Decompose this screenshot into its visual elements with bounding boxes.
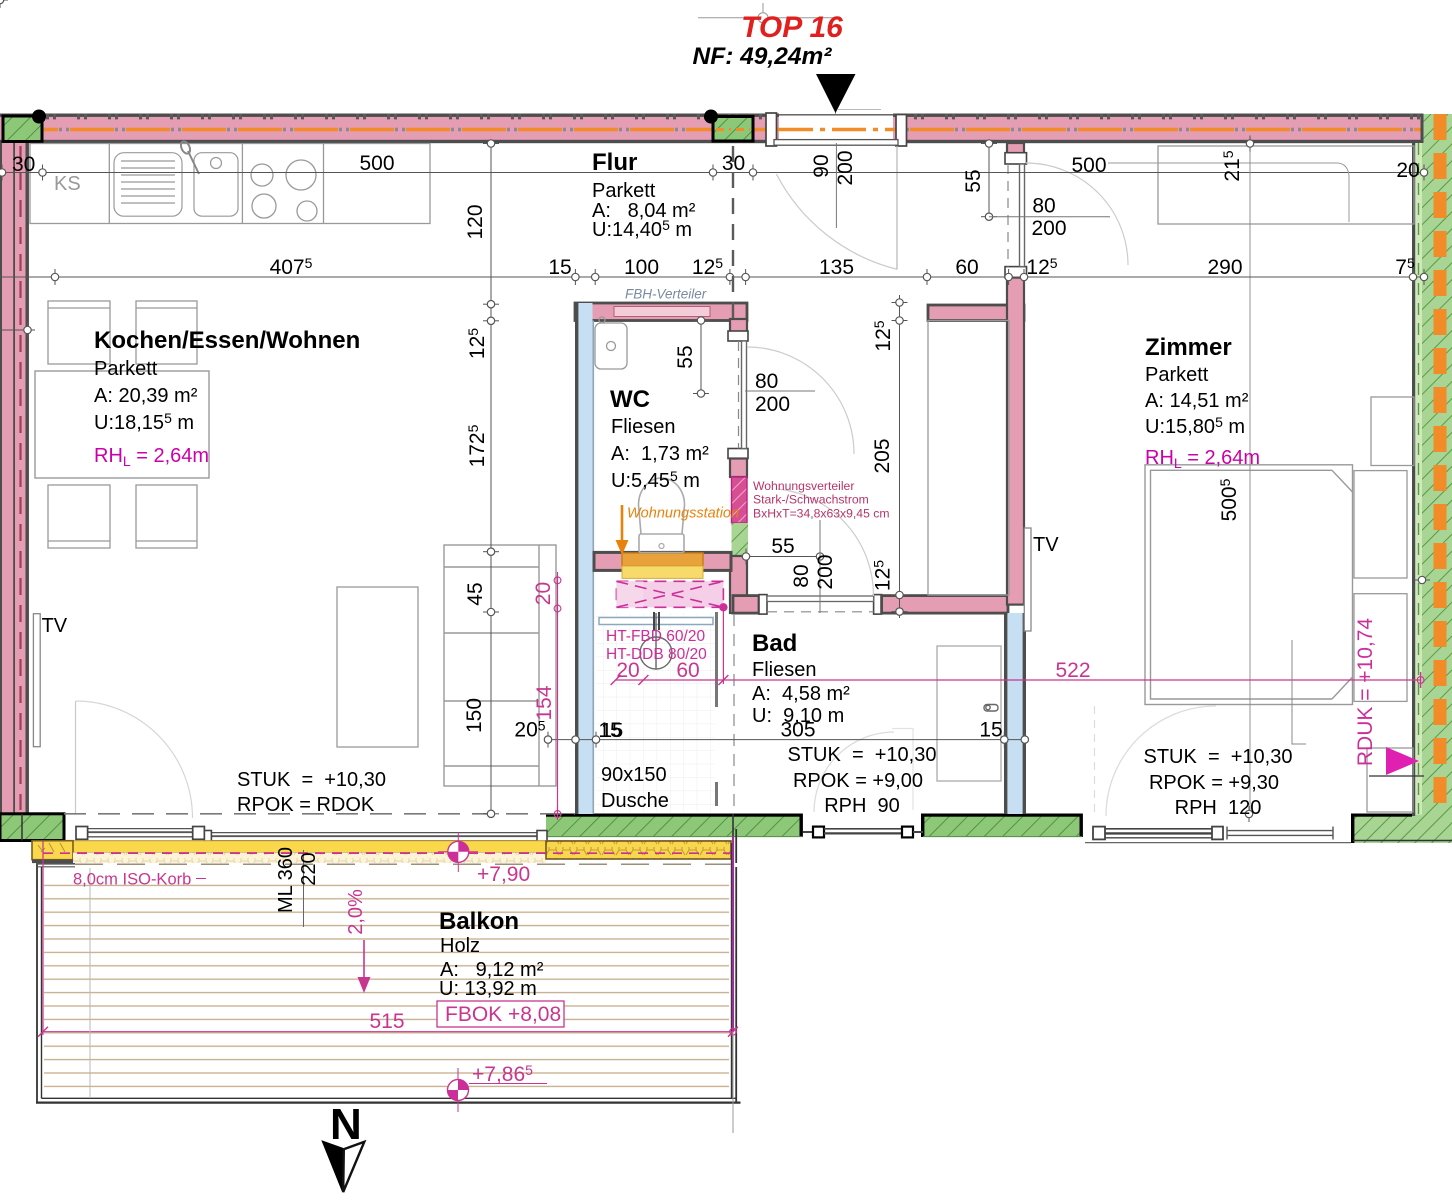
svg-text:Flur: Flur xyxy=(592,149,637,176)
svg-text:Fliesen: Fliesen xyxy=(611,416,675,438)
svg-text:A: 4,58 m²: A: 4,58 m² xyxy=(752,683,850,705)
svg-text:Parkett: Parkett xyxy=(592,180,656,202)
svg-text:20: 20 xyxy=(1396,159,1419,182)
svg-text:RHL = 2,64m: RHL = 2,64m xyxy=(94,445,209,469)
svg-text:200: 200 xyxy=(814,554,837,589)
svg-text:20: 20 xyxy=(532,582,555,605)
svg-text:A: 1,73 m²: A: 1,73 m² xyxy=(611,443,709,465)
svg-text:RPOK = RDOK: RPOK = RDOK xyxy=(237,794,375,816)
svg-text:RPH 120: RPH 120 xyxy=(1175,797,1262,819)
svg-text:60: 60 xyxy=(955,256,978,279)
svg-text:55: 55 xyxy=(962,169,985,192)
svg-text:15: 15 xyxy=(601,720,623,742)
svg-text:15: 15 xyxy=(979,719,1002,742)
svg-text:U:14,405 m: U:14,405 m xyxy=(592,217,692,241)
svg-text:8,0cm ISO-Korb: 8,0cm ISO-Korb xyxy=(73,871,191,889)
svg-text:Bad: Bad xyxy=(752,630,797,657)
svg-text:A: 14,51 m²: A: 14,51 m² xyxy=(1145,390,1249,412)
svg-text:500: 500 xyxy=(1071,154,1106,177)
svg-text:154: 154 xyxy=(533,685,556,720)
svg-text:55: 55 xyxy=(771,535,794,558)
svg-text:TOP 16: TOP 16 xyxy=(741,11,843,44)
svg-text:RPOK = +9,30: RPOK = +9,30 xyxy=(1149,772,1279,794)
svg-text:TV: TV xyxy=(1033,534,1059,556)
svg-text:200: 200 xyxy=(1031,217,1066,240)
svg-text:WC: WC xyxy=(610,386,650,413)
svg-text:2,0%: 2,0% xyxy=(345,889,367,935)
svg-text:Wohnungsverteiler: Wohnungsverteiler xyxy=(753,479,854,493)
svg-text:FBH-Verteiler: FBH-Verteiler xyxy=(625,287,707,302)
svg-text:A: 20,39 m²: A: 20,39 m² xyxy=(94,385,198,407)
svg-text:+7,90: +7,90 xyxy=(477,863,530,886)
svg-text:150: 150 xyxy=(463,698,486,733)
svg-text:HT-FBD 60/20: HT-FBD 60/20 xyxy=(606,628,705,645)
svg-text:220: 220 xyxy=(298,852,320,885)
svg-text:45: 45 xyxy=(464,582,487,605)
svg-text:100: 100 xyxy=(624,256,659,279)
svg-text:ML 360: ML 360 xyxy=(275,847,297,913)
svg-text:Balkon: Balkon xyxy=(439,908,519,935)
svg-text:STUK = +10,30: STUK = +10,30 xyxy=(788,744,937,766)
svg-text:15: 15 xyxy=(548,256,571,279)
svg-text:U:18,155 m: U:18,155 m xyxy=(94,410,194,434)
svg-text:STUK = +10,30: STUK = +10,30 xyxy=(1144,746,1293,768)
svg-text:RPH 90: RPH 90 xyxy=(824,795,900,817)
svg-text:HT-DDB 80/20: HT-DDB 80/20 xyxy=(606,646,707,663)
svg-text:U: 9,10 m: U: 9,10 m xyxy=(752,705,844,727)
svg-text:U:15,805 m: U:15,805 m xyxy=(1145,414,1245,438)
svg-text:RDUK = +10,74: RDUK = +10,74 xyxy=(1354,618,1377,767)
svg-text:RPOK = +9,00: RPOK = +9,00 xyxy=(793,770,923,792)
svg-text:30: 30 xyxy=(12,153,35,176)
svg-text:500: 500 xyxy=(359,152,394,175)
svg-text:STUK = +10,30: STUK = +10,30 xyxy=(237,769,386,791)
svg-text:90x150: 90x150 xyxy=(601,764,667,786)
svg-text:205: 205 xyxy=(871,438,894,473)
svg-text:120: 120 xyxy=(464,204,487,239)
svg-text:Wohnungsstation: Wohnungsstation xyxy=(627,506,739,522)
svg-text:U:5,455 m: U:5,455 m xyxy=(611,468,700,492)
svg-text:N: N xyxy=(330,1100,362,1149)
svg-text:80: 80 xyxy=(1032,195,1055,218)
svg-text:Parkett: Parkett xyxy=(94,358,158,380)
svg-text:135: 135 xyxy=(819,256,854,279)
svg-text:Parkett: Parkett xyxy=(1145,364,1209,386)
svg-text:NF: 49,24m²: NF: 49,24m² xyxy=(693,43,833,70)
svg-text:FBOK +8,08: FBOK +8,08 xyxy=(445,1003,561,1026)
svg-text:200: 200 xyxy=(755,393,790,416)
svg-text:TV: TV xyxy=(42,615,68,637)
svg-text:515: 515 xyxy=(369,1010,404,1033)
svg-text:522: 522 xyxy=(1055,659,1090,682)
svg-text:200: 200 xyxy=(834,150,857,185)
svg-text:Kochen/Essen/Wohnen: Kochen/Essen/Wohnen xyxy=(94,327,360,354)
svg-text:Zimmer: Zimmer xyxy=(1145,334,1232,361)
svg-text:U: 13,92 m: U: 13,92 m xyxy=(439,978,537,1000)
svg-text:+7,865: +7,865 xyxy=(472,1062,533,1086)
svg-text:80: 80 xyxy=(755,370,778,393)
svg-text:Holz: Holz xyxy=(440,935,480,957)
svg-text:KS: KS xyxy=(54,173,81,195)
svg-text:90: 90 xyxy=(810,154,833,177)
svg-text:Dusche: Dusche xyxy=(601,790,669,812)
svg-text:RHL = 2,64m: RHL = 2,64m xyxy=(1145,447,1260,471)
svg-text:BxHxT=34,8x63x9,45 cm: BxHxT=34,8x63x9,45 cm xyxy=(753,507,890,521)
svg-text:290: 290 xyxy=(1207,256,1242,279)
svg-text:Stark-/Schwachstrom: Stark-/Schwachstrom xyxy=(753,493,869,507)
svg-text:Fliesen: Fliesen xyxy=(752,659,816,681)
svg-text:80: 80 xyxy=(790,564,813,587)
svg-text:55: 55 xyxy=(674,345,697,368)
